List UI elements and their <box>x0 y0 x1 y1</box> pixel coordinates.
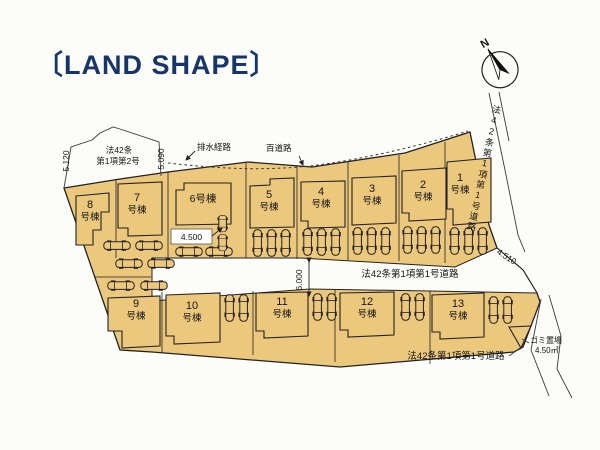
plot-9-suffix: 号棟 <box>126 310 146 322</box>
car-icon <box>430 227 440 253</box>
car-icon <box>217 215 227 231</box>
car-icon <box>400 294 410 320</box>
law-note-line2: 第1項第2号 <box>96 156 139 166</box>
plot-13-suffix: 号棟 <box>448 310 468 322</box>
car-icon <box>116 258 142 268</box>
compass-north-label: N <box>479 37 492 51</box>
car-icon <box>108 280 134 290</box>
plot-8-number: 8 <box>87 199 93 211</box>
car-icon <box>352 228 362 254</box>
car-icon <box>312 294 322 320</box>
plot-11-suffix: 号棟 <box>272 308 292 320</box>
car-icon <box>330 229 340 255</box>
compass-icon: N <box>466 30 524 95</box>
plot-7-number: 7 <box>134 192 140 204</box>
plot-5-number: 5 <box>266 189 272 201</box>
car-icon <box>280 230 290 256</box>
car-icon <box>266 230 276 256</box>
car-icon <box>217 234 227 250</box>
car-icon <box>136 240 162 250</box>
plot-9-number: 9 <box>133 298 139 310</box>
car-icon <box>238 295 248 321</box>
plot-10-suffix: 号棟 <box>182 312 202 324</box>
car-icon <box>477 228 487 254</box>
plot-3-suffix: 号棟 <box>362 195 382 207</box>
car-icon <box>488 297 498 323</box>
plot-12-suffix: 号棟 <box>357 308 377 320</box>
plot-4-number: 4 <box>318 186 324 198</box>
bottom-road-label: 法42条第1項第1号道路 <box>407 350 505 362</box>
dim-6000-label: 6.000 <box>294 269 304 291</box>
car-icon <box>502 297 512 323</box>
drainage-arrow <box>186 151 195 160</box>
garbage-area-label: 4.50㎡ <box>535 346 559 355</box>
dim-5090-label: 5.090 <box>156 148 166 170</box>
plot-10-number: 10 <box>186 300 198 312</box>
plot-13-number: 13 <box>452 298 464 310</box>
plot-2-number: 2 <box>420 179 426 191</box>
car-icon <box>449 228 459 254</box>
drainage-route-label: 排水経路 <box>197 142 232 152</box>
car-icon <box>402 227 412 253</box>
car-icon <box>252 230 262 256</box>
car-icon <box>414 294 424 320</box>
plot-2-suffix: 号棟 <box>413 191 433 203</box>
plot-1-suffix: 号棟 <box>450 184 470 196</box>
plot-7-suffix: 号棟 <box>127 204 147 216</box>
land-shape-plan: 〔LAND SHAPE〕 N <box>0 0 600 450</box>
car-icon <box>104 240 130 250</box>
plot-12-number: 12 <box>361 296 373 308</box>
car-icon <box>176 246 202 256</box>
car-icon <box>224 295 234 321</box>
car-icon <box>326 294 336 320</box>
plot-11-number: 11 <box>276 296 287 308</box>
top-road-arrow <box>299 156 303 165</box>
dim-4500-label: 4.500 <box>181 232 203 242</box>
car-icon <box>380 228 390 254</box>
car-icon <box>316 229 326 255</box>
dim-5120-label: 5.120 <box>61 150 71 172</box>
center-road-label: 法42条第1項第1号道路 <box>361 268 459 280</box>
site-plan-drawing: 〔LAND SHAPE〕 N <box>0 0 600 450</box>
plot-8-suffix: 号棟 <box>80 211 100 223</box>
garbage-name-label: ゴミ置場 <box>530 335 562 345</box>
plot-3-number: 3 <box>369 183 375 195</box>
plot-6-label: 6号棟 <box>190 192 217 205</box>
car-icon <box>148 258 174 268</box>
car-icon <box>141 280 167 290</box>
top-road-label: 百道路 <box>266 143 292 153</box>
plot-1-number: 1 <box>457 172 463 184</box>
car-icon <box>302 229 312 255</box>
plot-5-suffix: 号棟 <box>259 201 279 213</box>
law-note-line1: 法42条 <box>106 145 133 155</box>
page-title: 〔LAND SHAPE〕 <box>36 50 278 80</box>
car-icon <box>366 228 376 254</box>
plot-4-suffix: 号棟 <box>311 198 331 210</box>
car-icon <box>416 227 426 253</box>
